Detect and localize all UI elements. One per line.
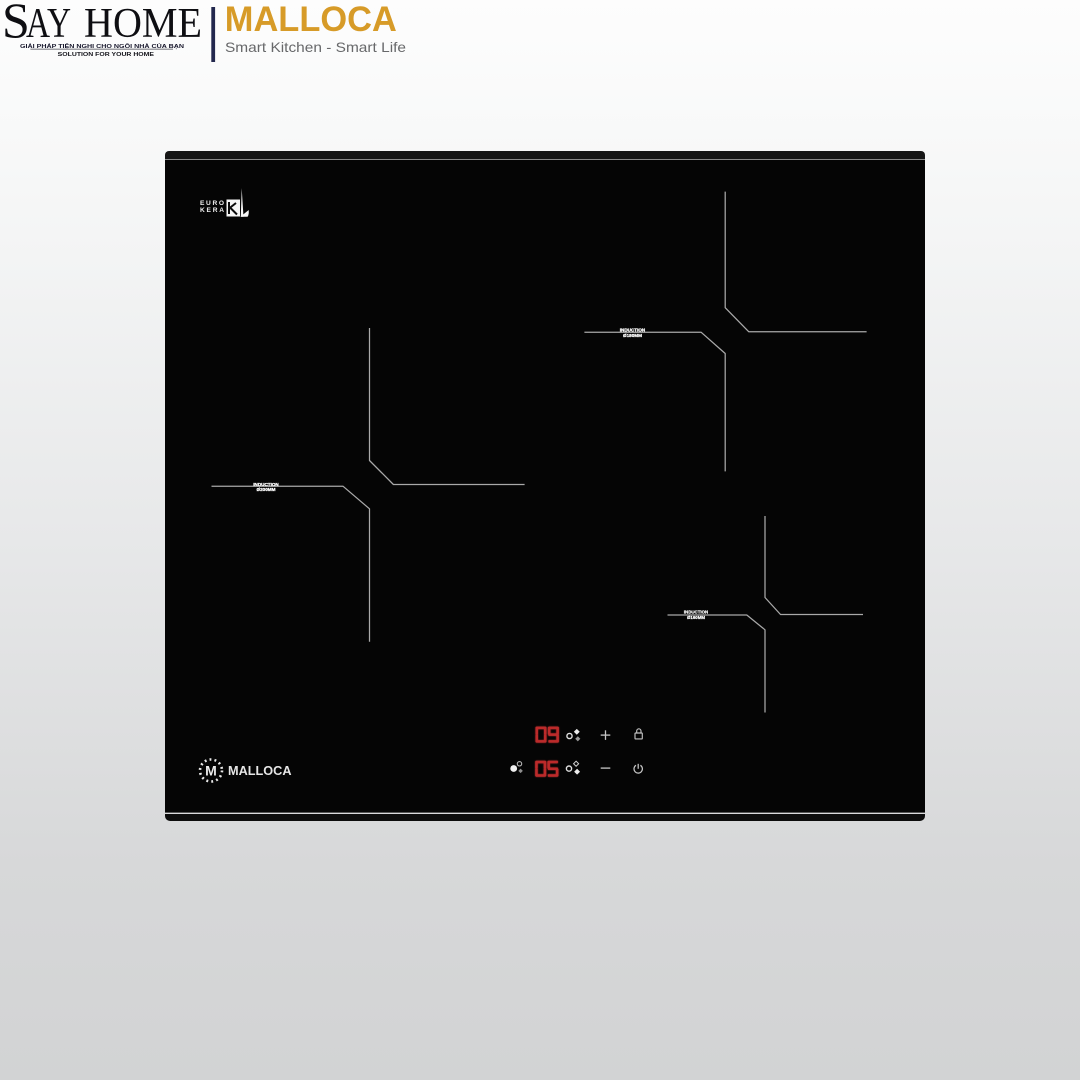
svg-text:HOME: HOME	[84, 1, 202, 47]
svg-text:INDUCTION: INDUCTION	[619, 327, 645, 332]
svg-text:Smart Kitchen - Smart Life: Smart Kitchen - Smart Life	[225, 39, 406, 55]
svg-text:MALLOCA: MALLOCA	[228, 764, 292, 778]
svg-text:SOLUTION FOR YOUR HOME: SOLUTION FOR YOUR HOME	[58, 52, 154, 58]
svg-text:INDUCTION: INDUCTION	[683, 609, 707, 614]
svg-text:Ø180MM: Ø180MM	[623, 333, 642, 338]
svg-text:KERA: KERA	[200, 207, 224, 214]
svg-text:INDUCTION: INDUCTION	[253, 481, 279, 486]
svg-text:AY: AY	[26, 1, 71, 47]
svg-text:Ø200MM: Ø200MM	[256, 487, 275, 492]
svg-text:Ø160MM: Ø160MM	[686, 615, 704, 620]
svg-text:M: M	[205, 762, 217, 778]
svg-text:MALLOCA: MALLOCA	[225, 0, 397, 39]
svg-text:EURO: EURO	[200, 200, 224, 207]
